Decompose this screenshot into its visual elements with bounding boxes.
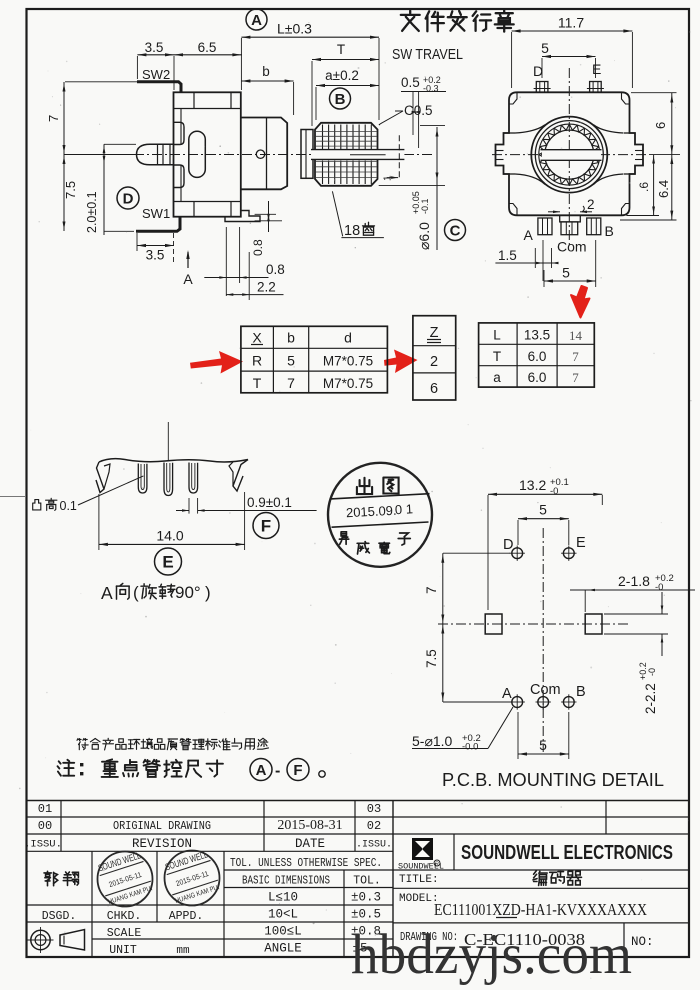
svg-text:C0.5: C0.5 <box>404 103 433 118</box>
svg-text:2: 2 <box>430 354 438 370</box>
svg-text:6.5: 6.5 <box>198 40 217 55</box>
svg-text:5: 5 <box>287 353 295 369</box>
svg-text:SOUNDWELL ELECTRONICS: SOUNDWELL ELECTRONICS <box>461 842 673 864</box>
svg-text:6.0: 6.0 <box>528 370 547 385</box>
svg-text:10<L: 10<L <box>268 908 298 922</box>
svg-text:13.5: 13.5 <box>524 328 550 343</box>
svg-text:18: 18 <box>344 223 360 239</box>
svg-text:TOL. UNLESS OTHERWISE SPEC.: TOL. UNLESS OTHERWISE SPEC. <box>230 857 382 870</box>
svg-text:): ) <box>205 583 211 602</box>
svg-text:±0.5: ±0.5 <box>351 908 381 922</box>
svg-text:b: b <box>287 330 295 346</box>
svg-text:CHKD.: CHKD. <box>107 910 142 923</box>
svg-text:0 1: 0 1 <box>395 501 414 517</box>
svg-text:2015.09.: 2015.09. <box>346 503 397 521</box>
svg-text:-0: -0 <box>647 668 657 676</box>
svg-text:7: 7 <box>287 375 295 391</box>
svg-text:A: A <box>101 583 113 603</box>
svg-text:T: T <box>493 349 501 364</box>
svg-text:ORIGINAL DRAWING: ORIGINAL DRAWING <box>113 819 211 833</box>
svg-text:0.9±0.1: 0.9±0.1 <box>247 495 292 510</box>
svg-text:d: d <box>344 330 352 346</box>
svg-text:5: 5 <box>541 40 549 56</box>
svg-text:2: 2 <box>587 197 595 212</box>
svg-text:EC111001XZD-HA1-KVXXXAXXX: EC111001XZD-HA1-KVXXXAXXX <box>434 900 647 919</box>
svg-text:E: E <box>576 535 586 551</box>
svg-text:.6: .6 <box>637 182 651 192</box>
svg-text:2.0±0.1: 2.0±0.1 <box>85 191 99 233</box>
svg-text:a±0.2: a±0.2 <box>325 68 359 83</box>
svg-text:SW1: SW1 <box>142 206 170 221</box>
svg-text:SCALE: SCALE <box>107 927 142 940</box>
svg-text:3.5: 3.5 <box>146 248 165 263</box>
svg-text:.ISSU.: .ISSU. <box>356 840 392 851</box>
svg-text:DSGD.: DSGD. <box>42 910 77 923</box>
svg-text:5: 5 <box>539 737 547 753</box>
svg-text:A: A <box>502 686 512 702</box>
svg-text:hbdzyjs.com: hbdzyjs.com <box>351 923 632 986</box>
svg-text:UNIT: UNIT <box>109 944 137 957</box>
svg-text:1: 1 <box>383 175 394 181</box>
svg-text:NO:: NO: <box>631 935 654 949</box>
svg-text:P.C.B. MOUNTING DETAIL: P.C.B. MOUNTING DETAIL <box>442 769 664 790</box>
svg-text:a: a <box>493 370 501 385</box>
svg-text:2015-08-31: 2015-08-31 <box>277 818 342 833</box>
svg-text:0.8: 0.8 <box>251 239 265 256</box>
svg-text:6: 6 <box>653 122 668 129</box>
svg-text:ANGLE: ANGLE <box>264 942 302 956</box>
svg-text:X: X <box>252 330 262 346</box>
svg-text:M7*0.75: M7*0.75 <box>323 354 373 369</box>
svg-text:5: 5 <box>539 502 547 518</box>
svg-text:14.0: 14.0 <box>156 528 183 544</box>
svg-text:D: D <box>503 537 513 553</box>
svg-text:L: L <box>493 328 501 343</box>
svg-text:DATE: DATE <box>295 837 325 851</box>
svg-text:L±0.3: L±0.3 <box>277 21 312 37</box>
svg-text:0.8: 0.8 <box>266 262 285 277</box>
svg-text:C: C <box>450 222 461 239</box>
svg-text:03: 03 <box>367 802 381 816</box>
svg-text:1.5: 1.5 <box>498 248 517 263</box>
svg-text:B: B <box>576 684 586 700</box>
svg-text:11.7: 11.7 <box>558 15 584 31</box>
svg-text:mm: mm <box>176 945 190 957</box>
svg-text:APPD.: APPD. <box>169 910 204 923</box>
svg-text:B: B <box>335 91 346 108</box>
svg-text:A: A <box>256 762 267 779</box>
svg-text:6.4: 6.4 <box>656 180 671 198</box>
svg-text:F: F <box>293 762 302 779</box>
svg-text:±0.3: ±0.3 <box>351 891 381 905</box>
svg-text:-: - <box>275 763 280 780</box>
svg-text:SW2: SW2 <box>142 67 170 82</box>
svg-text:T: T <box>253 375 262 391</box>
svg-text:5-⌀1.0: 5-⌀1.0 <box>412 733 453 749</box>
svg-text:7: 7 <box>424 586 439 594</box>
svg-text:TITLE:: TITLE: <box>399 874 439 886</box>
svg-text:2-1.8: 2-1.8 <box>618 573 650 589</box>
svg-text:5: 5 <box>562 265 570 281</box>
svg-text:13.2: 13.2 <box>519 477 546 493</box>
svg-text:E: E <box>592 61 601 77</box>
svg-text:F: F <box>261 517 271 536</box>
svg-text:01: 01 <box>38 802 52 816</box>
svg-text:-0.1: -0.1 <box>420 198 430 214</box>
svg-text:⌀6.0: ⌀6.0 <box>416 222 432 250</box>
svg-text:2-2.2: 2-2.2 <box>643 683 658 714</box>
svg-text:R: R <box>435 862 439 868</box>
svg-text:D: D <box>123 190 134 207</box>
svg-text:TOL.: TOL. <box>353 875 381 888</box>
svg-text:BASIC DIMENSIONS: BASIC DIMENSIONS <box>242 874 330 888</box>
svg-text:b: b <box>262 64 270 79</box>
svg-text:02: 02 <box>367 819 381 833</box>
svg-text:Com: Com <box>557 239 587 255</box>
svg-text:-0.0: -0.0 <box>462 742 478 753</box>
svg-text:A: A <box>183 271 193 287</box>
svg-text:T: T <box>337 42 345 57</box>
svg-text:0.1: 0.1 <box>60 499 77 513</box>
svg-text:E: E <box>162 553 173 572</box>
svg-text:L≤10: L≤10 <box>268 891 298 905</box>
svg-text:-0: -0 <box>655 582 663 593</box>
svg-text:00: 00 <box>38 819 52 833</box>
svg-text:M7*0.75: M7*0.75 <box>323 376 373 391</box>
svg-text:.ISSU.: .ISSU. <box>24 839 62 851</box>
svg-text:7: 7 <box>572 349 579 364</box>
svg-text:Com: Com <box>530 682 561 698</box>
svg-text:REVISION: REVISION <box>132 837 192 851</box>
svg-text:100≤L: 100≤L <box>264 925 302 939</box>
svg-text:7: 7 <box>46 115 61 122</box>
svg-text:3.5: 3.5 <box>145 40 164 55</box>
svg-text:A: A <box>524 227 534 243</box>
svg-text:B: B <box>605 223 614 239</box>
svg-text:7.5: 7.5 <box>424 649 439 668</box>
svg-text:2.2: 2.2 <box>257 280 276 295</box>
svg-text:7.5: 7.5 <box>63 181 78 199</box>
svg-text:R: R <box>252 353 262 369</box>
svg-text:90°: 90° <box>175 583 201 602</box>
svg-text:A: A <box>251 12 262 29</box>
svg-text:6: 6 <box>430 381 438 397</box>
svg-text:Z: Z <box>430 325 439 341</box>
svg-text:MODEL:: MODEL: <box>399 893 439 905</box>
svg-text:(: ( <box>133 583 139 602</box>
svg-text:0.5: 0.5 <box>401 75 420 90</box>
svg-text:6.0: 6.0 <box>528 349 547 364</box>
svg-text:-0: -0 <box>550 486 558 497</box>
svg-text:7: 7 <box>572 370 579 385</box>
svg-text:SW TRAVEL: SW TRAVEL <box>392 47 463 63</box>
svg-text:14: 14 <box>569 328 583 343</box>
